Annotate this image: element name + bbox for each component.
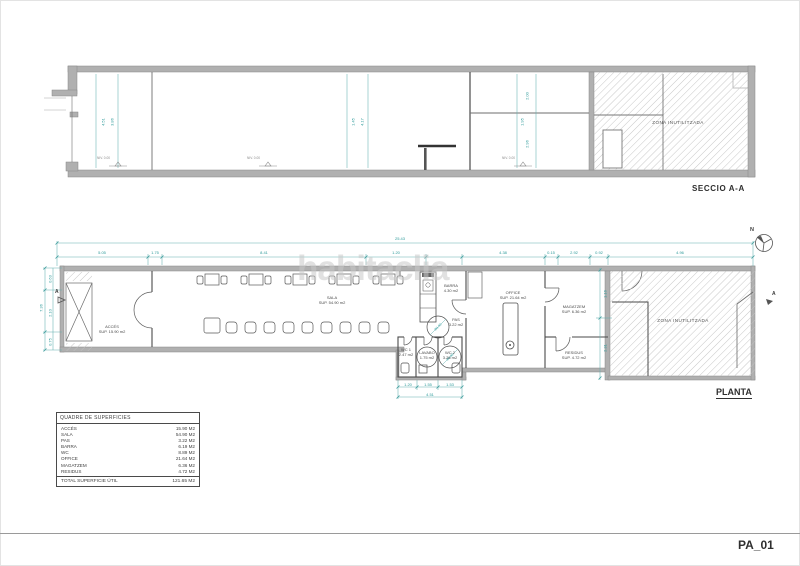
room-label-magatzem: MAGATZEM SUP. 6.36 m2 bbox=[562, 305, 586, 315]
room-area: SUP. 21.64 m2 bbox=[500, 296, 527, 301]
plan-dim: 4.38 bbox=[499, 250, 507, 255]
plan-dim: 4.96 bbox=[676, 250, 684, 255]
room-label-pas: PAS 3.22 m2 bbox=[449, 318, 463, 328]
wc-total-dim: 4.51 bbox=[426, 392, 434, 397]
total-label: TOTAL SUPERFICIE ÚTIL bbox=[61, 479, 118, 484]
room-area: SUP. 54.90 m2 bbox=[319, 301, 346, 306]
plan-dim: 0.15 bbox=[547, 250, 555, 255]
north-arrow bbox=[756, 235, 773, 252]
section-dim: 2.96 bbox=[525, 140, 530, 148]
plan-dim: 0.92 bbox=[595, 250, 603, 255]
sheet-code: PA_01 bbox=[738, 538, 774, 552]
room-area: SUP. 6.36 m2 bbox=[562, 310, 586, 315]
section-level-markers bbox=[109, 162, 532, 166]
plan-dim: 5.05 bbox=[98, 250, 106, 255]
plan-zona bbox=[610, 271, 755, 376]
room-area: SUP. 4.72 m2 bbox=[562, 356, 586, 361]
surface-table: QUADRE DE SUPERFICIES ACCÉS 15.90 M2 SAL… bbox=[56, 412, 200, 487]
section-zona-label: ZONA INUTILITZADA bbox=[652, 120, 703, 125]
plan-vestibule bbox=[66, 272, 92, 351]
row-label: RESIDUS bbox=[61, 469, 81, 475]
north-label: N bbox=[750, 227, 754, 233]
plan-left-dim: 2.10 bbox=[48, 309, 53, 317]
room-label-acces: ACCÉS SUP. 15.90 m2 bbox=[99, 325, 126, 335]
wc-dim: 1.53 bbox=[446, 382, 454, 387]
plan-dim: 1.75 bbox=[151, 250, 159, 255]
plan-left-dim: 0.75 bbox=[48, 338, 53, 346]
room-label-residus: RESIDUS SUP. 4.72 m2 bbox=[562, 351, 586, 361]
surface-table-title: QUADRE DE SUPERFICIES bbox=[57, 413, 199, 424]
drawing-sheet: habitaclia ZONA INUTILITZADA 4.51 3.86 1… bbox=[0, 0, 800, 566]
plan-dim: 2.92 bbox=[570, 250, 578, 255]
section-dim: 4.17 bbox=[360, 118, 365, 126]
room-area: 2.47 m2 bbox=[399, 353, 413, 358]
titleblock-divider bbox=[0, 533, 800, 534]
plan-left-dim: 0.63 bbox=[48, 275, 53, 283]
room-label-wc2: WC 2 3.26 m2 bbox=[443, 351, 457, 361]
table-row: RESIDUS 4.72 M2 bbox=[57, 469, 199, 475]
plan-dim: 1.20 bbox=[392, 250, 400, 255]
room-label-sala: SALA SUP. 54.90 m2 bbox=[319, 296, 346, 306]
room-area: SUP. 15.90 m2 bbox=[99, 330, 126, 335]
section-dim: 2.00 bbox=[525, 92, 530, 100]
total-value: 121.65 M2 bbox=[172, 479, 195, 484]
section-dim: 1.95 bbox=[520, 118, 525, 126]
plan-right-dim: 1.16 bbox=[603, 290, 608, 298]
section-view-title: SECCIO A-A bbox=[692, 184, 745, 193]
room-label-lavabo: LAVABO 1.75 m2 bbox=[419, 351, 434, 361]
row-value: 4.72 M2 bbox=[178, 469, 195, 475]
section-marker-a-left: A bbox=[55, 289, 59, 295]
wc-dim: 1.20 bbox=[404, 382, 412, 387]
room-area: 3.22 m2 bbox=[449, 323, 463, 328]
room-area: 4.30 m2 bbox=[444, 289, 458, 294]
section-level-label: NIV. 0.00 bbox=[502, 156, 515, 160]
surface-table-rows: ACCÉS 15.90 M2 SALA 54.90 M2 PAS 3.22 M2… bbox=[57, 424, 199, 476]
section-bar-counter bbox=[418, 146, 456, 170]
table-total-row: TOTAL SUPERFICIE ÚTIL 121.65 M2 bbox=[57, 476, 199, 486]
plan-view-title: PLANTA bbox=[716, 387, 752, 399]
room-area: 1.75 m2 bbox=[419, 356, 434, 361]
plan-total-dim: 25.43 bbox=[395, 236, 405, 241]
plan-dim: 8.41 bbox=[260, 250, 268, 255]
wc-dim: 1.55 bbox=[424, 382, 432, 387]
plan-zona-label: ZONA INUTILITZADA bbox=[657, 318, 708, 323]
room-area: 3.26 m2 bbox=[443, 356, 457, 361]
section-level-label: NIV. 0.00 bbox=[247, 156, 260, 160]
section-dim: 3.86 bbox=[110, 118, 115, 126]
section-marker-a-right: A bbox=[772, 291, 776, 297]
section-dim: 1.45 bbox=[351, 118, 356, 126]
plan-right-dim: 2.31 bbox=[603, 344, 608, 352]
room-label-barra: BARRA 4.30 m2 bbox=[444, 284, 458, 294]
section-level-label: NIV. 0.00 bbox=[97, 156, 110, 160]
watermark: habitaclia bbox=[297, 249, 448, 289]
plan-left-total-dim: 7.36 bbox=[39, 304, 44, 312]
room-label-office: OFFICE SUP. 21.64 m2 bbox=[500, 291, 527, 301]
room-label-wc1: WC 1 2.47 m2 bbox=[399, 348, 413, 358]
section-dim: 4.51 bbox=[101, 118, 106, 126]
